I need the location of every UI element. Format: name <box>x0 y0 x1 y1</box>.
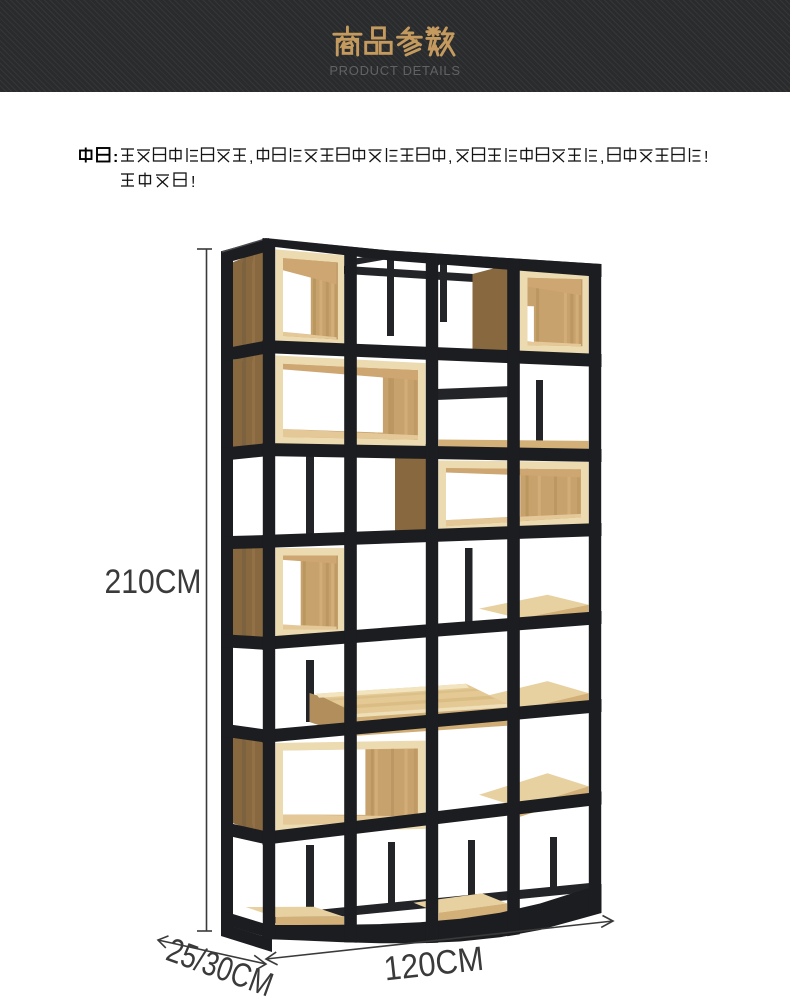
svg-text:!: ! <box>191 174 195 191</box>
svg-text:,: , <box>600 149 604 166</box>
svg-text:,: , <box>448 149 452 166</box>
svg-text::: : <box>113 149 118 166</box>
svg-text:210CM: 210CM <box>105 563 202 601</box>
svg-text:!: ! <box>704 149 708 166</box>
svg-text:120CM: 120CM <box>382 940 486 989</box>
svg-text:,: , <box>249 149 253 166</box>
